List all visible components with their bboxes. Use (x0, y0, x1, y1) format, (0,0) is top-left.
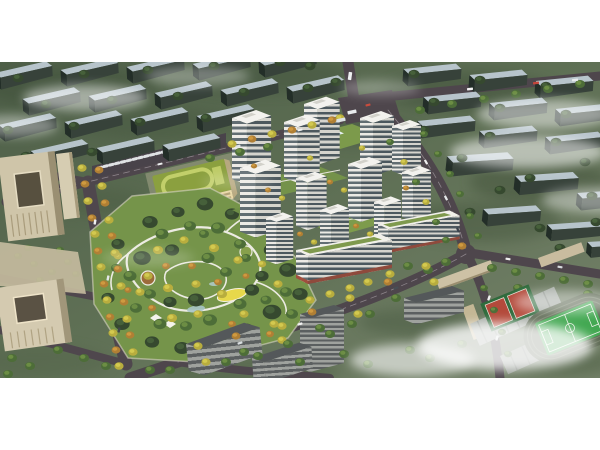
tree (13, 74, 24, 83)
rendering-photo: Aerial bird's-eye rendering of a residen… (0, 62, 600, 378)
tree (279, 263, 297, 277)
tree (234, 299, 247, 309)
tree (3, 370, 13, 378)
tree (25, 362, 35, 370)
residential-tower (392, 120, 421, 175)
tree (535, 272, 545, 280)
tree (7, 354, 17, 362)
tree (188, 294, 205, 307)
tree (253, 352, 263, 360)
tree (102, 296, 111, 304)
masterplan-rendering (0, 62, 600, 378)
tree (197, 198, 214, 211)
tree (266, 331, 274, 337)
tree (184, 221, 196, 231)
tree (245, 284, 259, 295)
tree (97, 182, 106, 190)
tree (239, 348, 249, 356)
tree (365, 310, 375, 318)
tree (474, 233, 482, 239)
tree (114, 362, 123, 370)
tree (202, 253, 215, 263)
tree (525, 174, 536, 183)
tree (96, 263, 105, 271)
tree (345, 294, 354, 302)
cloud (340, 80, 420, 96)
tree (148, 305, 156, 311)
tree (409, 70, 420, 79)
tree (221, 358, 231, 366)
tree (420, 131, 428, 137)
tree (490, 307, 498, 313)
tree (434, 151, 442, 157)
tree (283, 340, 293, 348)
tree (77, 164, 86, 172)
tree (575, 80, 585, 88)
tree (144, 289, 156, 299)
tree (263, 143, 273, 151)
tree (120, 298, 129, 305)
tree (193, 342, 202, 350)
tree (559, 276, 569, 284)
tree (286, 309, 298, 319)
tree (267, 130, 276, 138)
tree (422, 199, 429, 205)
tree (345, 284, 354, 292)
cloud (350, 344, 474, 376)
tree (429, 98, 440, 107)
tree (341, 187, 347, 192)
tree (442, 237, 450, 243)
tree (83, 197, 92, 205)
tree (307, 155, 313, 160)
tree (171, 207, 184, 217)
tree (95, 166, 104, 173)
cloud (146, 66, 250, 86)
tree (173, 92, 184, 101)
cloud (202, 175, 274, 189)
tree (199, 230, 209, 238)
tree (535, 224, 546, 233)
tree (108, 232, 117, 239)
residential-tower (266, 212, 293, 264)
cloud (102, 249, 194, 267)
tree (303, 84, 314, 93)
tree (142, 216, 157, 228)
tree (277, 322, 286, 330)
tree (269, 320, 278, 328)
tree (145, 366, 155, 374)
tree (328, 116, 337, 123)
tree (255, 271, 268, 281)
tree (116, 282, 125, 290)
tree (239, 310, 248, 318)
tree (359, 145, 365, 150)
tree (412, 179, 420, 185)
tree (432, 219, 440, 225)
tree (122, 315, 131, 323)
tree (327, 179, 333, 184)
tree (79, 354, 89, 362)
tree (209, 244, 219, 252)
tree (106, 313, 115, 320)
tree (101, 199, 110, 206)
tree (279, 195, 285, 200)
tree (288, 126, 297, 133)
tree (108, 329, 117, 337)
rooftop-courtyard (14, 293, 47, 323)
tree (167, 314, 177, 322)
tree (273, 280, 282, 288)
tree (100, 280, 109, 287)
tree (391, 294, 401, 302)
tree (339, 350, 349, 358)
cloud (450, 136, 600, 168)
tree (456, 191, 464, 197)
tree (258, 261, 266, 268)
tree (191, 280, 200, 288)
tree (308, 308, 317, 315)
residential-tower (402, 166, 431, 221)
tree (233, 256, 242, 264)
tree (441, 258, 451, 266)
tree (130, 303, 142, 313)
tree (165, 366, 175, 374)
tree (353, 223, 359, 228)
tree (201, 114, 212, 123)
tree (214, 279, 222, 285)
tree (235, 148, 245, 156)
tree (163, 297, 176, 307)
tree (201, 358, 210, 366)
tree (307, 121, 316, 129)
tree (251, 163, 257, 168)
tree (94, 247, 103, 254)
tree (384, 278, 393, 285)
tree (145, 336, 159, 347)
tree (179, 236, 188, 244)
office-tower-south (0, 279, 72, 352)
tree (487, 264, 497, 272)
tree (403, 262, 413, 270)
tree (421, 262, 430, 270)
tree (429, 278, 438, 286)
tree (305, 62, 316, 70)
rooftop-courtyard (14, 171, 44, 208)
tree (280, 287, 292, 297)
tree (466, 213, 474, 219)
tree (90, 230, 99, 238)
tree (403, 185, 409, 190)
tree (367, 231, 373, 236)
tree (331, 78, 342, 87)
tree (415, 106, 425, 114)
tree (114, 265, 123, 272)
tree (135, 118, 146, 127)
tree (386, 139, 394, 145)
tree (124, 287, 131, 293)
tree (295, 358, 305, 366)
tree (211, 222, 225, 233)
tree (292, 288, 307, 300)
tree (217, 290, 227, 298)
tree (81, 180, 90, 187)
tree (311, 239, 317, 244)
tree (232, 332, 241, 339)
tree (124, 271, 137, 281)
tree (143, 272, 152, 280)
tree (128, 348, 137, 356)
tree (480, 285, 488, 291)
tree (53, 346, 63, 354)
tree (511, 90, 521, 98)
tree (325, 330, 335, 338)
tree (475, 76, 486, 85)
tree (495, 186, 506, 195)
tree (180, 321, 192, 331)
tree (315, 324, 325, 332)
tree (447, 100, 457, 108)
tree (205, 154, 215, 162)
tree (154, 319, 167, 329)
tree (265, 187, 271, 192)
tree (583, 280, 593, 288)
tree (543, 85, 553, 93)
tree (163, 284, 173, 292)
tree (188, 263, 196, 269)
tree (248, 135, 257, 142)
tree (511, 268, 521, 276)
tree (101, 362, 111, 370)
tree (446, 171, 454, 177)
tree (458, 242, 467, 249)
tree (135, 288, 144, 296)
tree (305, 296, 314, 304)
tree (220, 267, 232, 277)
tree (104, 216, 113, 224)
tree (347, 320, 357, 328)
tree (400, 159, 407, 165)
north-entry-road (348, 62, 354, 100)
tree (227, 140, 236, 148)
tree (242, 273, 249, 279)
tree (69, 122, 80, 131)
tree (156, 229, 169, 239)
office-tower-north (0, 151, 65, 241)
tree (385, 270, 394, 278)
tree (203, 314, 217, 325)
tree (479, 95, 489, 103)
tree (363, 278, 372, 286)
tree (241, 254, 251, 262)
tree (239, 88, 250, 97)
tree (111, 239, 124, 249)
tree (297, 231, 303, 236)
tree (325, 290, 334, 298)
tree (234, 239, 246, 249)
tree (79, 70, 90, 79)
tree (193, 310, 202, 318)
tree (126, 331, 135, 338)
tree (263, 305, 282, 320)
cloud (23, 85, 147, 111)
tree (353, 310, 362, 318)
tree (112, 346, 121, 353)
tree (261, 296, 272, 305)
tree (87, 148, 98, 157)
